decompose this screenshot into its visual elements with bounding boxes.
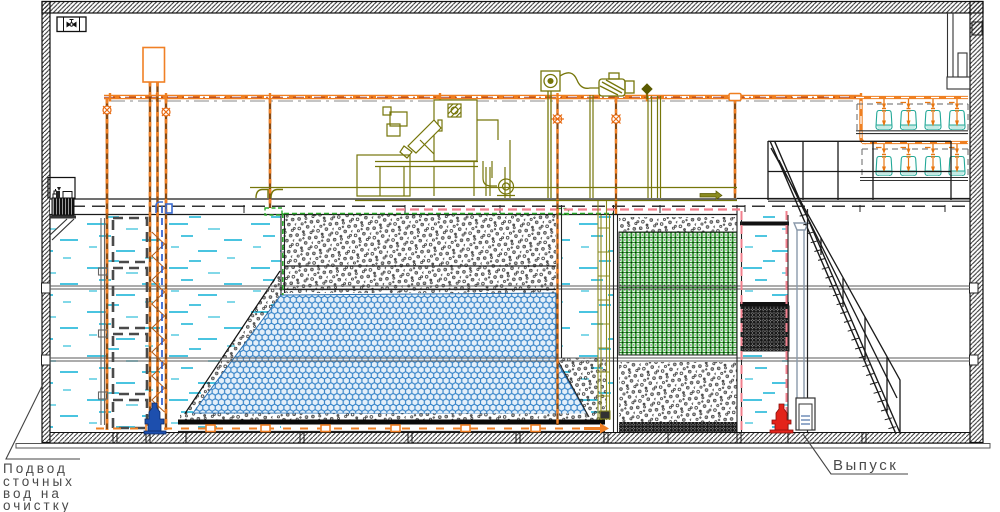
svg-text:очистку: очистку [3,498,72,512]
svg-text:Выпуск: Выпуск [833,457,898,474]
